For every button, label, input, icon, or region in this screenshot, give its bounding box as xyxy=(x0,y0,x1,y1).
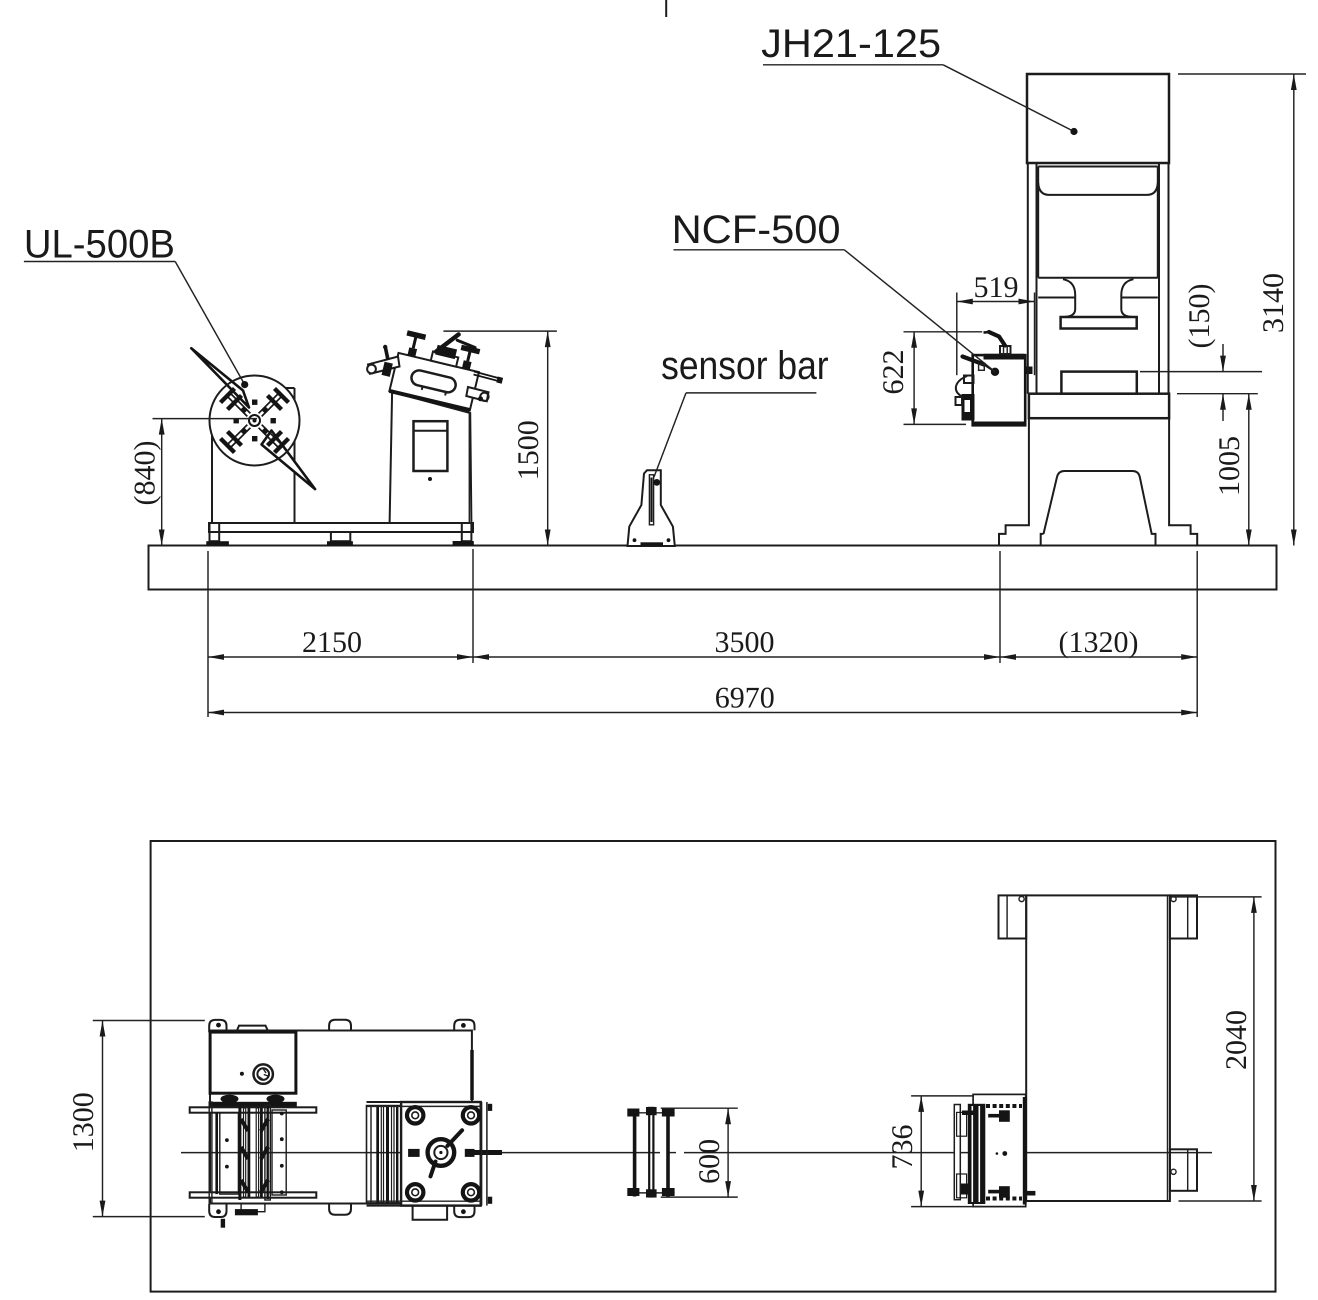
svg-text:1300: 1300 xyxy=(67,1092,100,1152)
svg-text:3500: 3500 xyxy=(715,626,775,659)
svg-text:(840): (840) xyxy=(129,441,162,506)
svg-text:(150): (150) xyxy=(1183,284,1216,349)
svg-text:736: 736 xyxy=(886,1125,919,1170)
svg-text:UL-500B: UL-500B xyxy=(24,223,175,267)
svg-text:JH21-125: JH21-125 xyxy=(761,22,941,66)
svg-text:6970: 6970 xyxy=(715,682,775,715)
svg-text:622: 622 xyxy=(877,350,910,395)
svg-text:600: 600 xyxy=(693,1139,726,1184)
svg-text:1500: 1500 xyxy=(512,420,545,480)
svg-text:3140: 3140 xyxy=(1257,273,1290,333)
svg-text:NCF-500: NCF-500 xyxy=(672,208,841,252)
svg-text:1005: 1005 xyxy=(1213,436,1246,496)
svg-text:(1320): (1320) xyxy=(1059,626,1139,659)
svg-text:2040: 2040 xyxy=(1220,1010,1253,1070)
svg-text:2150: 2150 xyxy=(302,626,362,659)
svg-text:519: 519 xyxy=(974,271,1019,304)
svg-text:sensor bar: sensor bar xyxy=(661,344,829,388)
